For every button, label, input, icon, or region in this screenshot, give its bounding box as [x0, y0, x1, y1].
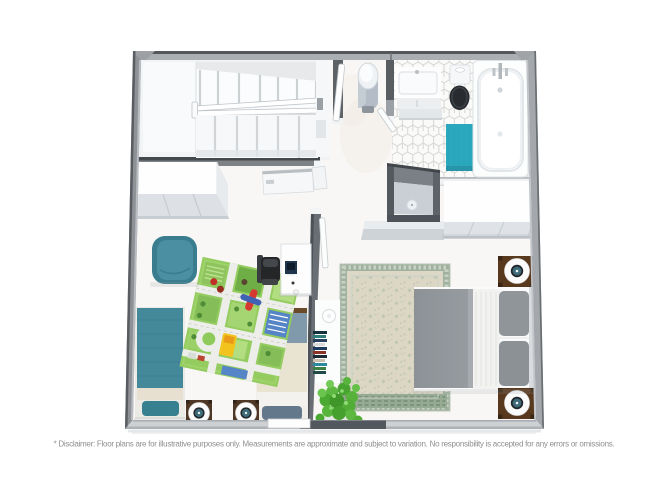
svg-text:* Disclaimer: Floor plans are: * Disclaimer: Floor plans are for illust… — [54, 440, 615, 449]
